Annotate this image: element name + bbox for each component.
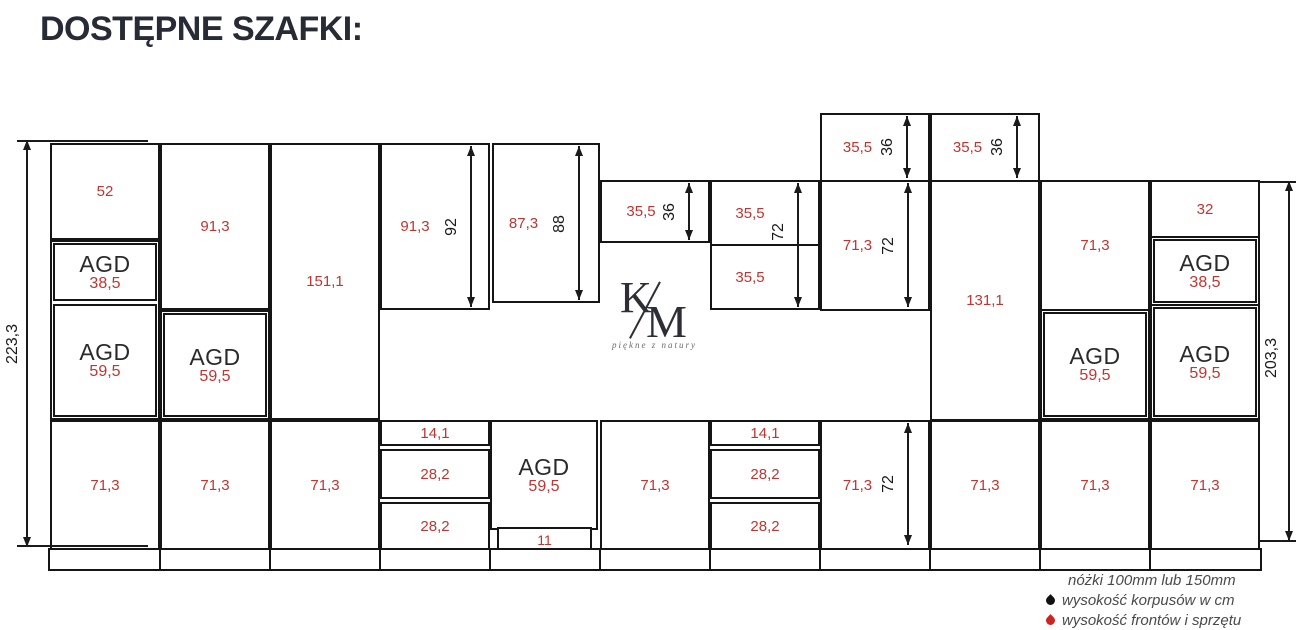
agd-label: AGD <box>518 455 569 479</box>
cabinet-agd-59-5-c2: AGD 59,5 <box>163 313 267 417</box>
drawer-28-2: 28,2 <box>710 502 820 550</box>
dim-label-total-right: 203,3 <box>1263 338 1281 378</box>
dim-label-92: 92 <box>443 218 461 236</box>
logo-letter-m: M <box>646 299 687 345</box>
dim-tick <box>1260 540 1296 542</box>
dim-label-36-c6: 36 <box>661 203 679 221</box>
dim-line-72-c7 <box>797 183 799 307</box>
base-cabinet-71-3: 71,3 <box>1040 420 1150 550</box>
legs-band-divider <box>1149 550 1151 569</box>
dim-label-total-left: 223,3 <box>4 324 22 364</box>
agd-front-height: 38,5 <box>1189 275 1220 292</box>
agd-front-height: 38,5 <box>89 276 120 293</box>
base-cabinet-71-3: 71,3 <box>600 420 710 550</box>
legend-carcass-row: wysokość korpusów w cm <box>1040 590 1300 610</box>
dim-line-total-right <box>1288 181 1290 541</box>
cabinet-agd-59-5-c11: AGD 59,5 <box>1153 307 1257 417</box>
dim-tick <box>17 140 148 142</box>
dim-line-88 <box>578 146 580 300</box>
dim-line-36-c8 <box>906 116 908 178</box>
agd-front-height: 59,5 <box>89 364 120 381</box>
dim-label-72-c8-base: 72 <box>880 475 898 493</box>
legs-band-divider <box>599 550 601 569</box>
legend: nóżki 100mm lub 150mm wysokość korpusów … <box>1040 570 1300 630</box>
legs-band-divider <box>269 550 271 569</box>
legs-band-divider <box>819 550 821 569</box>
cabinet-agd-59-5-c1: AGD 59,5 <box>53 304 157 417</box>
base-cabinet-71-3: 71,3 <box>820 420 930 550</box>
legs-band <box>48 548 1262 571</box>
legs-band-divider <box>159 550 161 569</box>
agd-front-height: 59,5 <box>1189 366 1220 383</box>
legs-band-divider <box>489 550 491 569</box>
dim-label-36-c9: 36 <box>989 138 1007 156</box>
legend-carcass-text: wysokość korpusów w cm <box>1062 592 1235 609</box>
drawer-28-2: 28,2 <box>380 449 490 499</box>
dim-tick <box>17 545 148 547</box>
legs-band-divider <box>1039 550 1041 569</box>
cabinet-52: 52 <box>50 143 160 240</box>
dim-line-92 <box>470 146 472 307</box>
agd-label: AGD <box>1179 342 1230 366</box>
agd-front-height: 59,5 <box>528 479 559 496</box>
agd-front-height: 59,5 <box>1079 368 1110 385</box>
legend-fronts-row: wysokość frontów i sprzętu <box>1040 610 1300 630</box>
cabinet-agd-59-5-c10: AGD 59,5 <box>1043 312 1147 417</box>
agd-label: AGD <box>189 345 240 369</box>
cabinet-131-1-tall: 131,1 <box>930 180 1040 421</box>
agd-label: AGD <box>1069 344 1120 368</box>
dim-label-36-c8: 36 <box>879 138 897 156</box>
base-cabinet-agd-59-5: AGD 59,5 <box>490 420 598 530</box>
cabinet-agd-38-5-left: AGD 38,5 <box>53 243 157 301</box>
red-drop-icon <box>1044 614 1057 627</box>
cabinet-32: 32 <box>1150 180 1260 238</box>
dim-line-36-c9 <box>1016 116 1018 178</box>
page-title: DOSTĘPNE SZAFKI: <box>40 10 363 49</box>
legs-band-divider <box>929 550 931 569</box>
dim-line-72-c8-wall <box>907 183 909 307</box>
wall-cabinet-71-3-c10: 71,3 <box>1040 180 1150 311</box>
drawer-28-2: 28,2 <box>710 449 820 499</box>
cabinet-151-1-tall: 151,1 <box>270 143 380 420</box>
top-cabinet-35-5-c8: 35,5 <box>820 113 930 182</box>
logo-tagline: piękne z natury <box>612 340 697 350</box>
wall-cabinet-71-3-c8: 71,3 <box>820 180 930 311</box>
drawer-14-1: 14,1 <box>380 420 490 446</box>
base-cabinet-71-3: 71,3 <box>270 420 380 550</box>
legend-legs-row: nóżki 100mm lub 150mm <box>1040 570 1300 590</box>
base-cabinet-71-3: 71,3 <box>930 420 1040 550</box>
base-cabinet-71-3: 71,3 <box>1150 420 1260 550</box>
cabinet-agd-38-5-right: AGD 38,5 <box>1153 239 1257 303</box>
agd-label: AGD <box>79 252 130 276</box>
top-cabinet-35-5-c9: 35,5 <box>930 113 1040 182</box>
legs-band-divider <box>709 550 711 569</box>
dim-label-72-c7: 72 <box>770 223 788 241</box>
base-cabinet-71-3: 71,3 <box>160 420 270 550</box>
dim-label-72-c8-wall: 72 <box>880 237 898 255</box>
legend-fronts-text: wysokość frontów i sprzętu <box>1062 612 1241 629</box>
black-drop-icon <box>1044 594 1057 607</box>
legs-band-divider <box>379 550 381 569</box>
dim-line-total-left <box>26 140 28 547</box>
wall-cabinet-35-5-c6: 35,5 <box>600 180 710 243</box>
wall-cabinet-35-5-c7-bottom: 35,5 <box>710 244 820 310</box>
dim-tick <box>1260 181 1296 183</box>
agd-front-height: 59,5 <box>199 369 230 386</box>
wall-cabinet-35-5-c7-top: 35,5 <box>710 180 820 246</box>
agd-label: AGD <box>79 340 130 364</box>
cabinet-87-3: 87,3 <box>492 143 600 303</box>
base-cabinet-71-3: 71,3 <box>50 420 160 550</box>
legend-legs-text: nóżki 100mm lub 150mm <box>1068 572 1236 589</box>
drawer-14-1: 14,1 <box>710 420 820 446</box>
dim-label-88: 88 <box>551 215 569 233</box>
dim-line-36-c6 <box>688 183 690 240</box>
cabinet-diagram: DOSTĘPNE SZAFKI: 52 AGD 38,5 AGD 59,5 91… <box>0 0 1312 630</box>
dim-line-72-c8-base <box>907 423 909 545</box>
cabinet-91-3-c4: 91,3 <box>380 143 490 310</box>
cabinet-91-3-c2: 91,3 <box>160 143 270 310</box>
agd-label: AGD <box>1179 251 1230 275</box>
drawer-28-2: 28,2 <box>380 502 490 550</box>
